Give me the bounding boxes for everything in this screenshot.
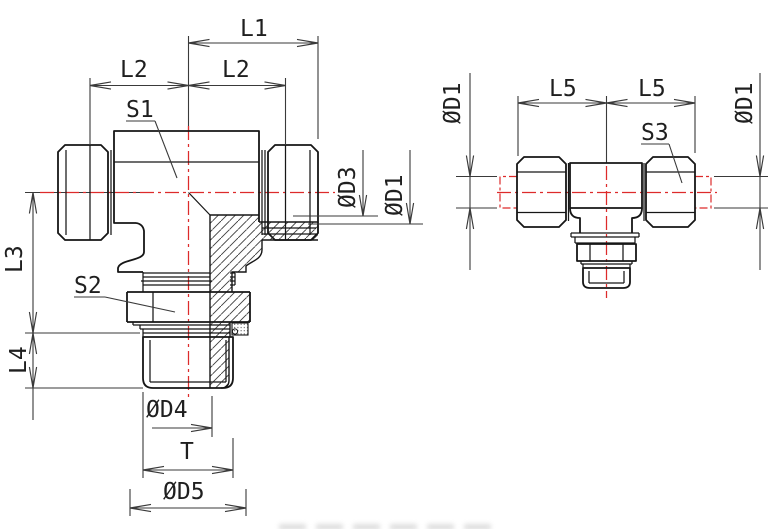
dim-label-d5: ØD5: [163, 479, 205, 505]
dim-label-t: T: [180, 439, 194, 465]
side-extension-lines: [456, 96, 768, 208]
side-lower-assembly: [571, 233, 639, 288]
bottom-smudge: [279, 524, 306, 529]
tee-fitting-drawing: L1 L2 L2 S1 ØD3 ØD1 L3 L4: [0, 0, 779, 529]
seal-detail: [232, 323, 248, 335]
front-centerlines: [40, 126, 335, 400]
dim-label-l1: L1: [240, 16, 268, 42]
dim-label-l5-left: L5: [549, 76, 577, 102]
dim-label-l3: L3: [2, 245, 28, 273]
bottom-smudge: [353, 524, 380, 529]
callout-label-s2: S2: [74, 273, 102, 299]
front-extension-lines: [25, 36, 318, 516]
bottom-smudge: [390, 524, 417, 529]
bottom-smudge: [427, 524, 454, 529]
left-nut: [58, 78, 111, 240]
dim-label-d1-side-left: ØD1: [440, 82, 466, 124]
side-centerlines: [497, 166, 717, 298]
dim-label-d1-front: ØD1: [382, 174, 408, 216]
callout-label-s1: S1: [126, 97, 154, 123]
front-view: L1 L2 L2 S1 ØD3 ØD1 L3 L4: [2, 16, 423, 516]
bottom-smudge: [464, 524, 491, 529]
callout-label-s3: S3: [641, 120, 669, 146]
side-dimensions: L5 L5 ØD1 ØD1 S3: [440, 73, 764, 270]
drawing-canvas: L1 L2 L2 S1 ØD3 ØD1 L3 L4: [0, 0, 779, 529]
bottom-smudge: [316, 524, 343, 529]
dim-label-d3: ØD3: [335, 166, 361, 208]
side-view: L5 L5 ØD1 ØD1 S3: [440, 73, 768, 298]
dim-label-l4: L4: [6, 346, 32, 374]
dim-label-l5-right: L5: [638, 76, 666, 102]
dim-label-d1-side-right: ØD1: [732, 82, 758, 124]
dim-label-l2-left: L2: [120, 57, 148, 83]
dim-label-l2-right: L2: [222, 57, 250, 83]
dim-label-d4: ØD4: [146, 397, 188, 423]
